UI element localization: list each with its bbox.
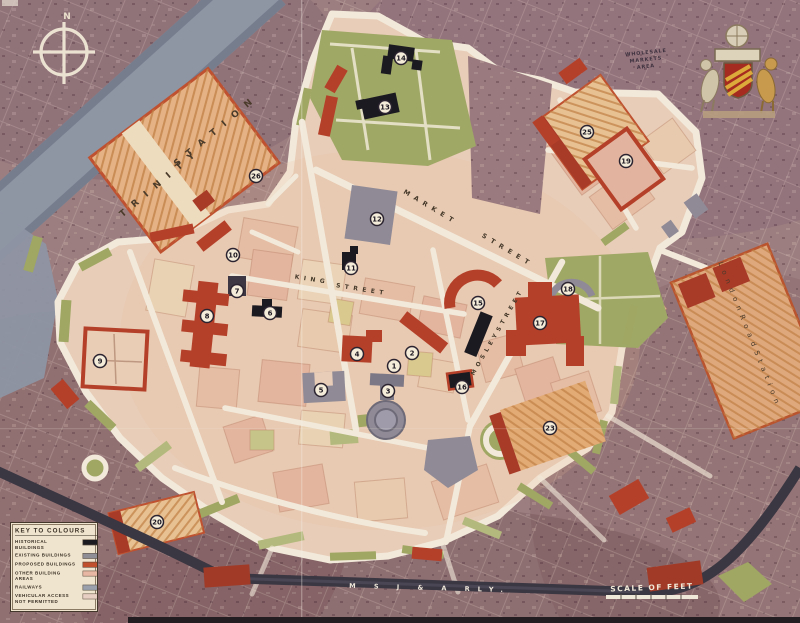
building-marker-1: 1: [388, 360, 401, 373]
svg-text:8: 8: [205, 313, 210, 321]
legend-item-label: RAILWAYS: [15, 584, 42, 590]
legend-rows: HISTORICAL BUILDINGSEXISTING BUILDINGSPR…: [15, 539, 98, 604]
svg-text:10: 10: [228, 252, 238, 260]
legend-item-0: HISTORICAL BUILDINGS: [15, 539, 98, 550]
svg-text:3: 3: [386, 388, 391, 396]
compass-north-label: N: [63, 12, 71, 22]
key-to-colours-legend: KEY TO COLOURS HISTORICAL BUILDINGSEXIST…: [10, 522, 98, 612]
building-marker-7: 7: [231, 285, 244, 298]
building-marker-23: 23: [544, 422, 557, 435]
svg-text:16: 16: [457, 384, 467, 392]
svg-text:5: 5: [319, 387, 324, 395]
legend-item-swatch: [83, 585, 98, 591]
svg-text:23: 23: [545, 425, 555, 433]
city-plan-map: T R I N I T YS T A T I O NM A R K E TS T…: [0, 0, 800, 623]
svg-text:18: 18: [563, 286, 573, 294]
building-marker-9: 9: [94, 355, 107, 368]
building-marker-13: 13: [379, 101, 392, 114]
legend-item-1: EXISTING BUILDINGS: [15, 553, 98, 559]
svg-text:2: 2: [410, 350, 415, 358]
legend-title: KEY TO COLOURS: [15, 527, 98, 536]
building-marker-11: 11: [345, 262, 358, 275]
legend-item-label: EXISTING BUILDINGS: [15, 553, 71, 559]
building-marker-18: 18: [562, 283, 575, 296]
building-marker-16: 16: [456, 381, 469, 394]
building-marker-15: 15: [472, 297, 485, 310]
svg-text:19: 19: [621, 158, 631, 166]
svg-text:6: 6: [268, 310, 273, 318]
legend-item-2: PROPOSED BUILDINGS: [15, 562, 98, 568]
svg-text:25: 25: [582, 129, 592, 137]
building-marker-26: 26: [250, 170, 263, 183]
building-marker-12: 12: [371, 213, 384, 226]
svg-text:11: 11: [346, 265, 356, 273]
building-marker-2: 2: [406, 347, 419, 360]
legend-item-swatch: [83, 562, 98, 568]
building-marker-6: 6: [264, 307, 277, 320]
building-marker-25: 25: [581, 126, 594, 139]
building-marker-4: 4: [351, 348, 364, 361]
building-marker-3: 3: [382, 385, 395, 398]
legend-item-label: VEHICULAR ACCESS NOT PERMITTED: [15, 593, 76, 604]
building-marker-8: 8: [201, 310, 214, 323]
svg-text:4: 4: [355, 351, 360, 359]
building-marker-17: 17: [534, 317, 547, 330]
svg-text:20: 20: [152, 519, 162, 527]
legend-item-4: RAILWAYS: [15, 584, 98, 590]
legend-item-swatch: [83, 553, 98, 559]
building-marker-14: 14: [395, 52, 408, 65]
svg-text:14: 14: [396, 55, 406, 63]
legend-item-label: PROPOSED BUILDINGS: [15, 562, 76, 568]
building-marker-10: 10: [227, 249, 240, 262]
civic-courtyard-building: [83, 328, 148, 389]
building-marker-20: 20: [151, 516, 164, 529]
legend-item-label: OTHER BUILDING AREAS: [15, 570, 76, 581]
svg-text:9: 9: [98, 358, 103, 366]
legend-item-swatch: [83, 594, 98, 600]
legend-item-swatch: [83, 539, 98, 545]
legend-item-swatch: [83, 571, 98, 577]
svg-text:13: 13: [380, 104, 390, 112]
map-canvas: T R I N I T YS T A T I O NM A R K E TS T…: [0, 0, 800, 623]
legend-item-label: HISTORICAL BUILDINGS: [15, 539, 76, 550]
legend-item-5: VEHICULAR ACCESS NOT PERMITTED: [15, 593, 98, 604]
building-marker-5: 5: [315, 384, 328, 397]
svg-text:7: 7: [235, 288, 240, 296]
svg-text:12: 12: [372, 216, 382, 224]
svg-text:26: 26: [251, 173, 261, 181]
legend-item-3: OTHER BUILDING AREAS: [15, 570, 98, 581]
svg-text:17: 17: [535, 320, 545, 328]
building-marker-19: 19: [620, 155, 633, 168]
svg-text:1: 1: [392, 363, 397, 371]
svg-text:15: 15: [473, 300, 483, 308]
